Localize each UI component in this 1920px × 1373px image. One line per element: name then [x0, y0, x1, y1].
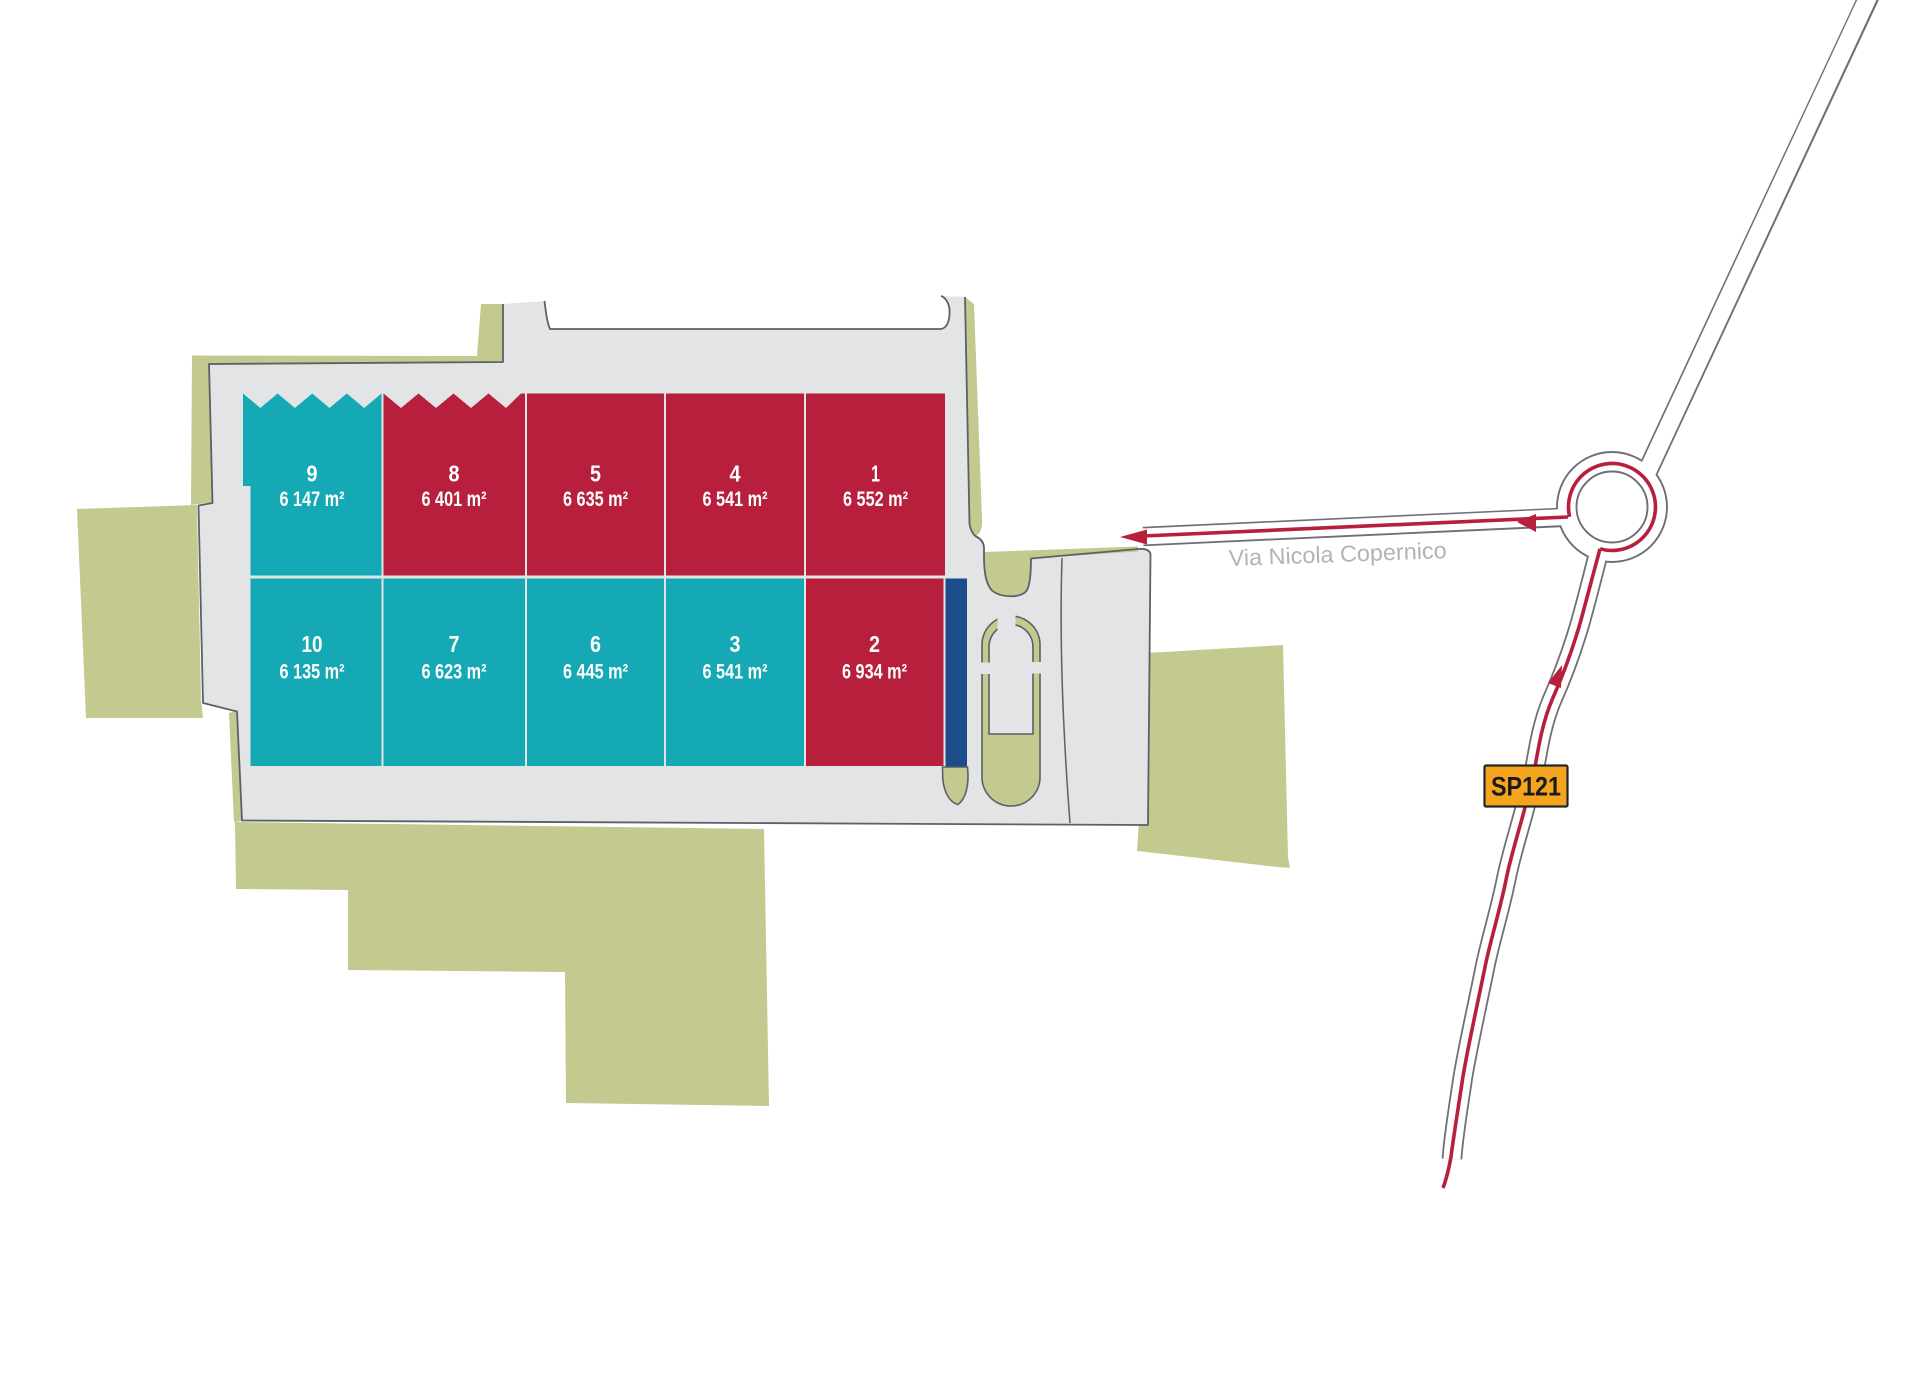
svg-text:6 135 m²: 6 135 m² [280, 661, 345, 684]
svg-text:6 635 m²: 6 635 m² [563, 488, 628, 511]
svg-text:SP121: SP121 [1491, 772, 1561, 802]
svg-text:7: 7 [449, 631, 460, 657]
svg-text:6 401 m²: 6 401 m² [422, 488, 487, 511]
svg-text:6: 6 [590, 631, 601, 657]
svg-text:6 147 m²: 6 147 m² [280, 488, 345, 511]
svg-text:3: 3 [730, 631, 741, 657]
svg-text:6 541 m²: 6 541 m² [703, 488, 768, 511]
svg-text:9: 9 [307, 461, 318, 487]
svg-text:4: 4 [730, 461, 741, 487]
svg-text:6 934 m²: 6 934 m² [842, 661, 907, 684]
svg-text:6 541 m²: 6 541 m² [703, 661, 768, 684]
svg-text:6 445 m²: 6 445 m² [563, 661, 628, 684]
svg-text:10: 10 [302, 631, 323, 657]
svg-text:6 623 m²: 6 623 m² [422, 661, 487, 684]
svg-text:6 552 m²: 6 552 m² [843, 488, 908, 511]
svg-text:5: 5 [590, 461, 601, 487]
svg-text:8: 8 [449, 461, 460, 487]
svg-text:1: 1 [871, 461, 880, 487]
svg-text:2: 2 [869, 631, 880, 657]
